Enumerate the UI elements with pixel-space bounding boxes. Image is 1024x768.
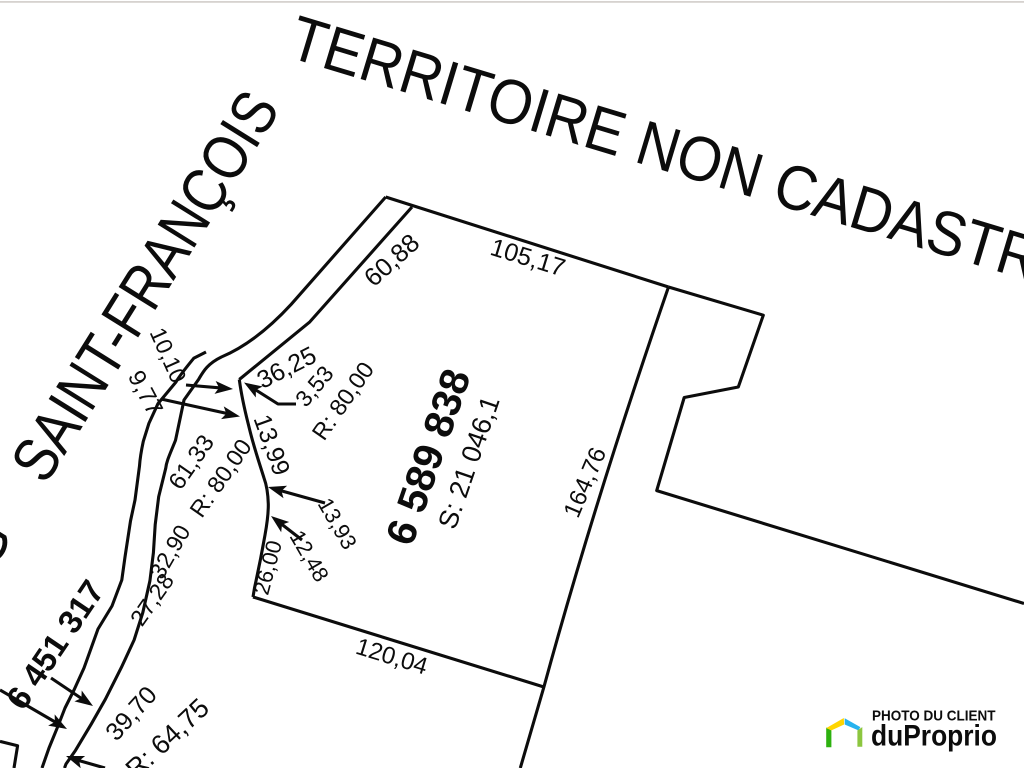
svg-text:60,88: 60,88 bbox=[359, 229, 425, 293]
svg-text:26,00: 26,00 bbox=[249, 538, 287, 598]
svg-text:6 451 317: 6 451 317 bbox=[0, 573, 111, 715]
svg-text:G SAINT-FRANÇOIS: G SAINT-FRANÇOIS bbox=[0, 79, 293, 578]
svg-text:27,28: 27,28 bbox=[125, 568, 179, 630]
svg-text:duProprio: duProprio bbox=[871, 720, 997, 753]
svg-text:12,48: 12,48 bbox=[285, 526, 334, 586]
svg-text:9,77: 9,77 bbox=[122, 366, 168, 420]
svg-text:13,93: 13,93 bbox=[313, 494, 362, 554]
